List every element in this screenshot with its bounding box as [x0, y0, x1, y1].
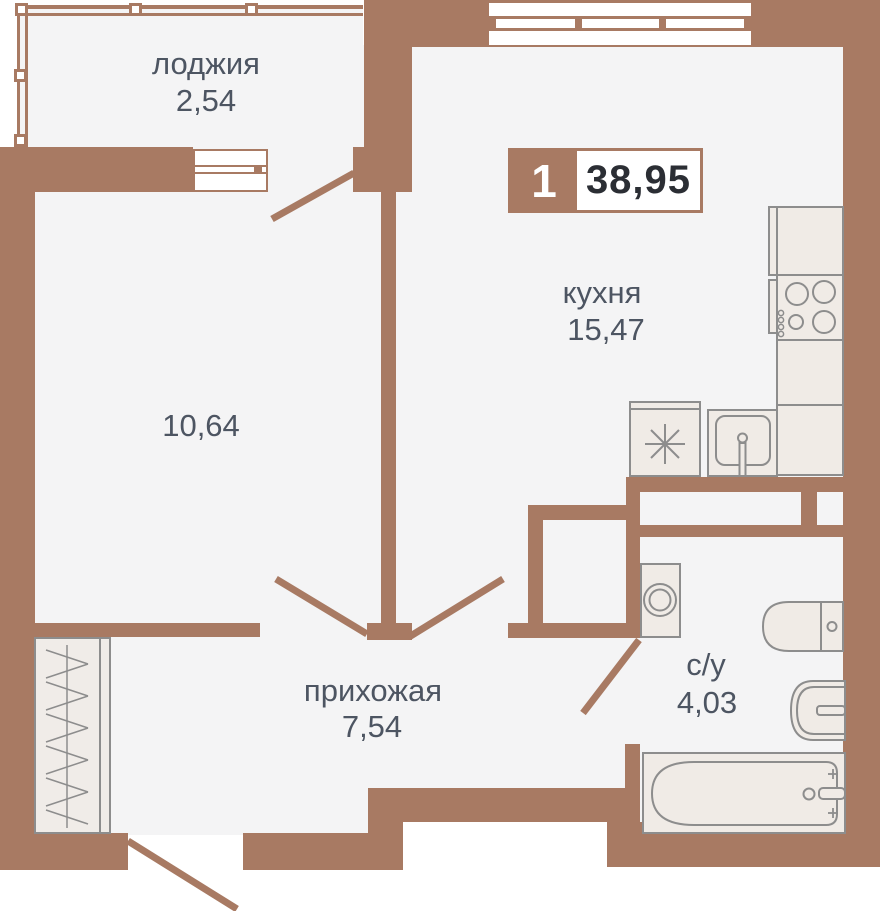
room-door-leaf-left	[276, 579, 367, 634]
bathroom-sink-fixture	[791, 681, 845, 740]
room-door-leaf-right	[409, 579, 503, 637]
fridge-fixture	[769, 207, 843, 275]
area-badge: 1 38,95	[508, 148, 703, 213]
rooms-count: 1	[511, 151, 577, 210]
toilet-fixture	[763, 602, 843, 651]
kitchen-area: 15,47	[567, 314, 645, 346]
hallway-label: прихожая	[304, 675, 442, 707]
bathroom-door-leaf	[583, 640, 639, 713]
kitchen-label: кухня	[563, 277, 642, 309]
living-room-area: 10,64	[162, 410, 240, 442]
loggia-door-leaf	[272, 173, 354, 219]
fixtures-layer	[0, 0, 880, 911]
wardrobe-fixture	[35, 638, 110, 833]
bathroom-area: 4,03	[677, 687, 737, 719]
kitchen-sink-fixture	[708, 410, 777, 476]
entry-door-leaf	[128, 841, 237, 909]
loggia-area: 2,54	[176, 85, 236, 117]
hallway-area: 7,54	[342, 711, 402, 743]
washing-machine-fixture	[641, 564, 680, 637]
kitchen-corner-unit-fixture	[777, 405, 843, 475]
bathtub-fixture	[643, 753, 845, 833]
floor-plan: 1 38,95 лоджия 2,54 10,64 кухня 15,47 пр…	[0, 0, 880, 911]
freezer-fixture	[630, 402, 700, 476]
bathroom-label: с/у	[686, 649, 726, 681]
loggia-label: лоджия	[152, 48, 260, 80]
stove-fixture	[769, 275, 843, 340]
total-area: 38,95	[577, 151, 700, 210]
kitchen-counter-fixture	[777, 340, 843, 405]
